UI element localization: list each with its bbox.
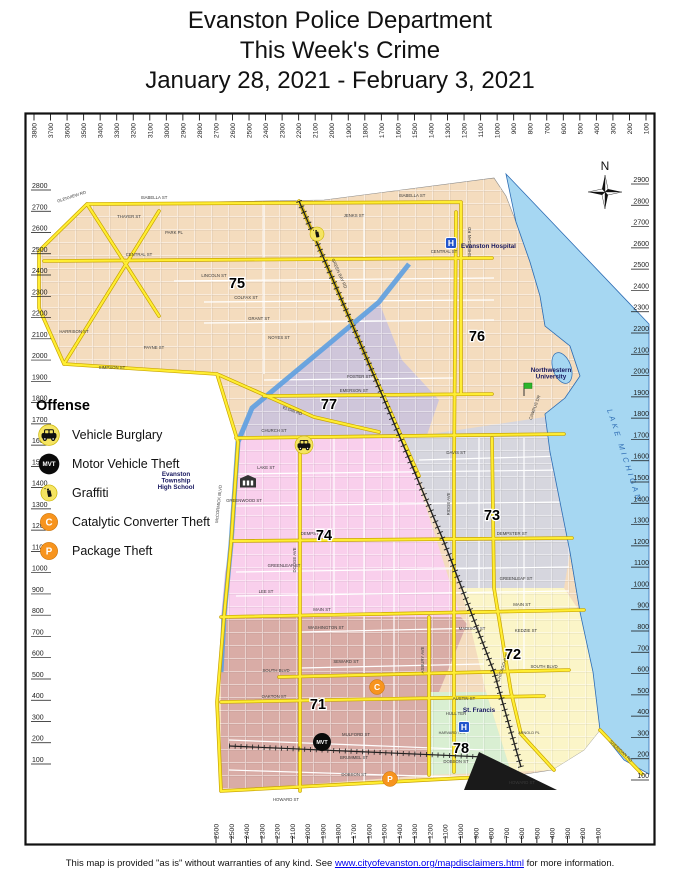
axis-tick-label: 1300: [445, 123, 452, 138]
axis-tick-label: 1600: [633, 454, 649, 461]
beat-label-77: 77: [321, 397, 337, 413]
street-label: BRUMMEL ST: [340, 755, 368, 760]
axis-tick-label: 1800: [633, 411, 649, 418]
beat-label-73: 73: [484, 508, 500, 524]
axis-tick-label: 500: [32, 672, 44, 679]
axis-tick-label: 2800: [32, 183, 48, 190]
street-label: OAKTON ST: [262, 694, 287, 699]
axis-tick-label: 2400: [633, 283, 649, 290]
crime-marker-vehicle-burglary: [39, 425, 60, 446]
street-label: AUSTIN ST: [453, 696, 476, 701]
street-label: ISABELLA ST: [141, 195, 168, 200]
axis-tick-label: 900: [32, 587, 44, 594]
street-label: SIMPSON ST: [99, 365, 126, 370]
axis-tick-label: 2000: [305, 824, 312, 839]
axis-tick-label: 1900: [346, 123, 353, 138]
axis-tick-label: 2100: [32, 332, 48, 339]
axis-tick-label: 2300: [633, 305, 649, 312]
axis-tick-label: 1000: [633, 581, 649, 588]
axis-tick-label: 200: [32, 736, 44, 743]
axis-tick-label: 1000: [458, 824, 465, 839]
crime-marker-graffiti: [41, 485, 57, 501]
axis-tick-label: 700: [32, 629, 44, 636]
axis-tick-label: 700: [637, 645, 649, 652]
axis-tick-label: 900: [473, 827, 480, 839]
legend-label: Graffiti: [72, 486, 109, 500]
axis-tick-label: 2700: [32, 204, 48, 211]
axis-tick-label: 300: [32, 714, 44, 721]
axis-tick-label: 2700: [633, 220, 649, 227]
axis-tick-label: 800: [32, 608, 44, 615]
axis-tick-label: 1900: [32, 374, 48, 381]
car-window: [301, 441, 304, 444]
axis-tick-label: 2000: [32, 353, 48, 360]
axis-tick-label: 900: [637, 603, 649, 610]
axis-tick-label: 800: [489, 827, 496, 839]
street-label: PARK PL: [165, 230, 183, 235]
axis-tick-label: 400: [594, 123, 601, 135]
axis-tick-label: 1200: [633, 539, 649, 546]
axis-tick-label: 2300: [280, 123, 287, 138]
car-hub: [52, 438, 54, 440]
legend-label: Package Theft: [72, 544, 152, 558]
landmark-label: St. Francis: [463, 707, 496, 714]
axis-tick-label: 3400: [98, 123, 105, 138]
vehicle-burglary-icon: [36, 424, 62, 446]
marker-letter: MVT: [316, 740, 328, 746]
car-hub: [307, 448, 308, 449]
beat-label-74: 74: [316, 528, 332, 544]
street-label: JENKS ST: [344, 213, 365, 218]
axis-tick-label: 1900: [320, 824, 327, 839]
car-hub: [44, 438, 46, 440]
axis-tick-label: 600: [32, 651, 44, 658]
disclaimer-footer: This map is provided "as is" without war…: [0, 858, 680, 869]
street-label: CHURCH ST: [261, 428, 287, 433]
beat-label-75: 75: [229, 276, 245, 292]
axis-tick-label: 400: [637, 709, 649, 716]
axis-tick-label: 1900: [633, 390, 649, 397]
axis-tick-label: 2500: [229, 824, 236, 839]
street-label: LAKE ST: [257, 465, 275, 470]
title-line-3: January 28, 2021 - February 3, 2021: [0, 66, 680, 96]
axis-tick-label: 1400: [397, 824, 404, 839]
axis-tick-label: 1700: [379, 123, 386, 138]
marker-letter: P: [46, 547, 53, 558]
axis-tick-label: 1300: [633, 518, 649, 525]
axis-tick-label: 2600: [214, 824, 221, 839]
axis-tick-label: 500: [577, 123, 584, 135]
axis-tick-label: 500: [637, 688, 649, 695]
axis-tick-label: 200: [627, 123, 634, 135]
title-line-2: This Week's Crime: [0, 36, 680, 66]
axis-tick-label: 400: [550, 827, 557, 839]
legend-item-vehicle-burglary: Vehicle Burglary: [36, 424, 251, 446]
axis-tick-label: 700: [504, 827, 511, 839]
page-title: Evanston Police Department This Week's C…: [0, 6, 680, 96]
axis-tick-label: 100: [32, 757, 44, 764]
legend-item-package-theft: P Package Theft: [36, 540, 251, 562]
street-label: DOBSON ST: [443, 759, 469, 764]
axis-tick-label: 1800: [336, 824, 343, 839]
axis-tick-label: 2100: [290, 824, 297, 839]
axis-tick-label: 300: [565, 827, 572, 839]
street-label: MAIN ST: [313, 607, 331, 612]
axis-tick-label: 800: [637, 624, 649, 631]
axis-tick-label: 1100: [443, 824, 450, 839]
axis-tick-label: 2400: [263, 123, 270, 138]
axis-tick-label: 600: [561, 123, 568, 135]
axis-tick-label: 2400: [32, 268, 48, 275]
axis-tick-label: 800: [528, 123, 535, 135]
axis-tick-label: 1100: [634, 560, 649, 567]
axis-tick-label: 2600: [633, 241, 649, 248]
legend-label: Catalytic Converter Theft: [72, 515, 210, 529]
beat-label-78: 78: [453, 741, 469, 757]
disclaimer-link[interactable]: www.cityofevanston.org/mapdisclaimers.ht…: [335, 858, 524, 869]
street-label: LEE ST: [259, 589, 274, 594]
beat-label-76: 76: [469, 329, 485, 345]
axis-tick-label: 900: [511, 123, 518, 135]
axis-tick-label: 3500: [81, 123, 88, 138]
beat-label-72: 72: [505, 647, 521, 663]
axis-tick-label: 2200: [32, 311, 48, 318]
axis-tick-label: 2900: [633, 177, 649, 184]
street-label: MULFORD ST: [342, 732, 370, 737]
axis-tick-label: 1200: [427, 824, 434, 839]
beat-label-71: 71: [310, 697, 326, 713]
crime-marker-package-theft: P: [40, 542, 57, 559]
street-label: THAYER ST: [117, 214, 141, 219]
crime-marker-motor-vehicle-theft: MVT: [39, 454, 60, 475]
street-label: HARRISON ST: [59, 329, 89, 334]
landmark-label: Evanston Hospital: [461, 243, 516, 250]
hospital-icon-letter: H: [461, 722, 467, 732]
street-label: WASHINGTON ST: [308, 625, 344, 630]
axis-tick-label: 2200: [633, 326, 649, 333]
street-label: MAIN ST: [513, 602, 531, 607]
axis-tick-label: 3000: [164, 123, 171, 138]
marker-letter: P: [387, 774, 393, 784]
street-label: ARNOLD PL: [518, 731, 540, 735]
axis-tick-label: 1400: [428, 123, 435, 138]
axis-tick-label: 2200: [296, 123, 303, 138]
axis-tick-label: 1100: [478, 123, 485, 138]
axis-tick-label: 700: [544, 123, 551, 135]
axis-tick-label: 2500: [32, 247, 48, 254]
street-label: GRANT ST: [248, 316, 270, 321]
street-label: GREENLEAF ST: [500, 576, 533, 581]
axis-tick-label: 2000: [633, 369, 649, 376]
axis-tick-label: 2600: [230, 123, 237, 138]
axis-tick-label: 1600: [395, 123, 402, 138]
axis-tick-label: 400: [32, 693, 44, 700]
landmark-label: University: [536, 374, 567, 381]
axis-tick-label: 1500: [412, 123, 419, 138]
crime-marker-vehicle-burglary: [295, 436, 313, 454]
legend-item-motor-vehicle-theft: MVT Motor Vehicle Theft: [36, 453, 251, 475]
disclaimer-text-after: for more information.: [524, 858, 614, 869]
axis-tick-label: 300: [610, 123, 617, 135]
crime-map-page: { "title": { "line1": "Evanston Police D…: [0, 0, 680, 884]
street-label: COLFAX ST: [234, 295, 258, 300]
crime-marker-graffiti: [310, 227, 324, 241]
car-hub: [300, 448, 301, 449]
crime-marker-catalytic-converter-theft: C: [370, 680, 385, 695]
hospital-icon-letter: H: [448, 238, 454, 248]
axis-tick-label: 2300: [32, 289, 48, 296]
street-label: RIDGE AVE: [446, 492, 451, 515]
street-label: HOWARD ST: [509, 780, 535, 785]
axis-tick-label: 2300: [259, 824, 266, 839]
offense-legend: Offense Vehicle Burglary MVT Motor Vehic…: [36, 398, 251, 569]
axis-tick-label: 3600: [65, 123, 72, 138]
flag-icon: [524, 383, 532, 389]
axis-tick-label: 2100: [633, 347, 649, 354]
car-window: [45, 430, 48, 433]
graffiti-icon: [36, 482, 62, 504]
axis-tick-label: 600: [519, 827, 526, 839]
axis-tick-label: 1700: [633, 432, 649, 439]
street-label: PAYNE ST: [144, 345, 165, 350]
axis-tick-label: 3100: [147, 123, 154, 138]
street-label: ISABELLA ST: [399, 193, 426, 198]
axis-tick-label: 2000: [329, 123, 336, 138]
street-label: DAVIS ST: [446, 450, 466, 455]
street-label: CENTRAL ST: [431, 249, 458, 254]
catalytic-converter-theft-icon: C: [36, 511, 62, 533]
axis-tick-label: 2100: [313, 123, 320, 138]
street-label: ASBURY AVE: [420, 646, 425, 673]
axis-tick-label: 600: [637, 667, 649, 674]
legend-item-graffiti: Graffiti: [36, 482, 251, 504]
car-window: [50, 430, 53, 433]
axis-tick-label: 1700: [351, 824, 358, 839]
crime-marker-motor-vehicle-theft: MVT: [313, 733, 331, 751]
compass-n-label: N: [601, 159, 610, 173]
axis-tick-label: 2500: [633, 262, 649, 269]
axis-tick-label: 2800: [633, 198, 649, 205]
axis-tick-label: 3300: [114, 123, 121, 138]
street-label: SOUTH BLVD: [530, 664, 557, 669]
street-label: LINCOLN ST: [201, 273, 227, 278]
title-line-1: Evanston Police Department: [0, 6, 680, 36]
axis-tick-label: 200: [637, 752, 649, 759]
axis-tick-label: 200: [580, 827, 587, 839]
axis-tick-label: 2900: [180, 123, 187, 138]
package-theft-icon: P: [36, 540, 62, 562]
street-label: HOWARD ST: [273, 797, 299, 802]
axis-tick-label: 1500: [633, 475, 649, 482]
axis-tick-label: 2800: [197, 123, 204, 138]
axis-tick-label: 1300: [412, 824, 419, 839]
axis-tick-label: 100: [596, 827, 603, 839]
street-label: SOUTH BLVD: [262, 668, 289, 673]
street-label: DODGE AVE: [292, 547, 297, 572]
legend-heading: Offense: [36, 398, 251, 414]
legend-label: Motor Vehicle Theft: [72, 457, 179, 471]
street-label: SHERIDAN RD: [467, 227, 472, 257]
street-label: SEWARD ST: [333, 659, 359, 664]
axis-tick-label: 100: [644, 123, 651, 135]
axis-tick-label: 1800: [362, 123, 369, 138]
axis-tick-label: 300: [637, 730, 649, 737]
axis-tick-label: 500: [534, 827, 541, 839]
axis-tick-label: 3200: [131, 123, 138, 138]
street-label: NOYES ST: [268, 335, 290, 340]
axis-tick-label: 1000: [495, 123, 502, 138]
street-label: DOBSON ST: [341, 772, 367, 777]
axis-tick-label: 1400: [633, 496, 649, 503]
street-label: MADISON ST: [459, 626, 486, 631]
axis-tick-label: 2700: [213, 123, 220, 138]
crime-marker-package-theft: P: [383, 772, 398, 787]
axis-tick-label: 1600: [366, 824, 373, 839]
axis-tick-label: 2600: [32, 226, 48, 233]
street-label: GLENVIEW RD: [56, 190, 86, 204]
car-window: [305, 441, 308, 444]
axis-tick-label: 1500: [382, 824, 389, 839]
crime-marker-catalytic-converter-theft: C: [40, 513, 57, 530]
street-label: KEDZIE ST: [515, 628, 538, 633]
marker-letter: MVT: [42, 461, 55, 468]
disclaimer-text-before: This map is provided "as is" without war…: [66, 858, 335, 869]
axis-tick-label: 2500: [247, 123, 254, 138]
motor-vehicle-theft-icon: MVT: [36, 453, 62, 475]
street-label: FOSTER ST: [347, 374, 371, 379]
marker-letter: C: [45, 518, 52, 529]
street-label: EMERSON ST: [340, 388, 369, 393]
axis-tick-label: 3800: [32, 123, 39, 138]
compass-rose: N: [588, 159, 622, 209]
axis-tick-label: 3700: [48, 123, 55, 138]
marker-letter: C: [374, 682, 380, 692]
school-icon-window: [251, 481, 253, 486]
legend-label: Vehicle Burglary: [72, 428, 162, 442]
axis-tick-label: 2400: [244, 824, 251, 839]
street-label: DEMPSTER ST: [497, 531, 528, 536]
axis-tick-label: 1200: [462, 123, 469, 138]
legend-item-catalytic-converter-theft: C Catalytic Converter Theft: [36, 511, 251, 533]
axis-tick-label: 100: [637, 773, 649, 780]
street-label: CENTRAL ST: [126, 252, 153, 257]
axis-tick-label: 2200: [275, 824, 282, 839]
